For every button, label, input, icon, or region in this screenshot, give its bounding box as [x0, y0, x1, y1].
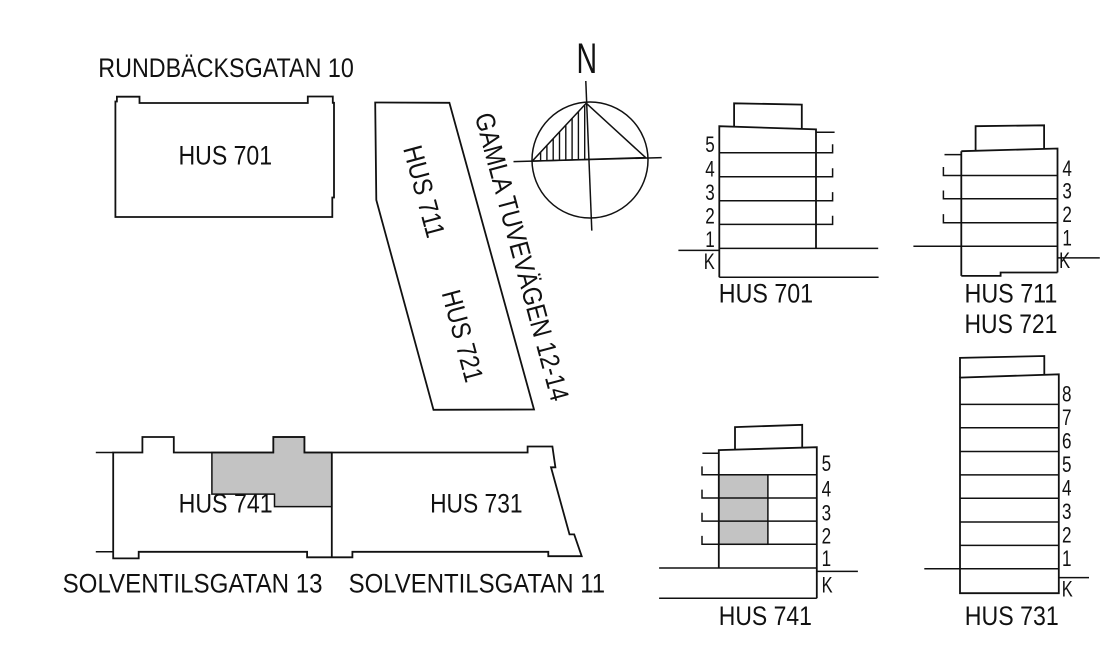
- svg-text:3: 3: [1062, 499, 1072, 524]
- svg-text:3: 3: [705, 180, 715, 205]
- svg-text:HUS 711: HUS 711: [965, 278, 1058, 308]
- svg-text:2: 2: [705, 204, 715, 229]
- svg-text:HUS 741: HUS 741: [179, 489, 273, 519]
- svg-text:HUS 701: HUS 701: [719, 279, 813, 309]
- svg-text:K: K: [1059, 248, 1070, 273]
- svg-text:1: 1: [1062, 226, 1072, 251]
- svg-text:5: 5: [1062, 452, 1072, 477]
- svg-text:2: 2: [1062, 522, 1072, 547]
- svg-text:3: 3: [1062, 178, 1072, 203]
- svg-text:4: 4: [1062, 156, 1072, 181]
- svg-text:4: 4: [705, 156, 715, 181]
- svg-text:K: K: [1062, 577, 1073, 602]
- svg-text:RUNDBÄCKSGATAN 10: RUNDBÄCKSGATAN 10: [98, 53, 354, 83]
- svg-text:2: 2: [822, 524, 832, 549]
- svg-text:6: 6: [1062, 429, 1072, 454]
- svg-text:SOLVENTILSGATAN 13: SOLVENTILSGATAN 13: [63, 568, 323, 598]
- svg-text:K: K: [704, 249, 715, 274]
- svg-text:HUS 731: HUS 731: [965, 601, 1059, 631]
- svg-text:3: 3: [822, 500, 832, 525]
- svg-text:SOLVENTILSGATAN 11: SOLVENTILSGATAN 11: [349, 568, 605, 598]
- svg-text:1: 1: [1062, 546, 1072, 571]
- svg-text:HUS 741: HUS 741: [719, 601, 812, 631]
- svg-text:5: 5: [822, 451, 832, 476]
- svg-text:K: K: [822, 573, 833, 598]
- svg-text:N: N: [577, 35, 598, 83]
- svg-text:HUS 701: HUS 701: [179, 141, 273, 171]
- svg-text:5: 5: [705, 132, 715, 157]
- svg-text:4: 4: [1062, 475, 1072, 500]
- svg-text:2: 2: [1062, 202, 1072, 227]
- svg-text:4: 4: [822, 476, 832, 501]
- svg-text:HUS 731: HUS 731: [430, 489, 522, 519]
- svg-text:8: 8: [1062, 381, 1072, 406]
- svg-text:HUS 721: HUS 721: [965, 309, 1058, 339]
- svg-text:1: 1: [822, 546, 832, 571]
- svg-text:7: 7: [1062, 405, 1072, 430]
